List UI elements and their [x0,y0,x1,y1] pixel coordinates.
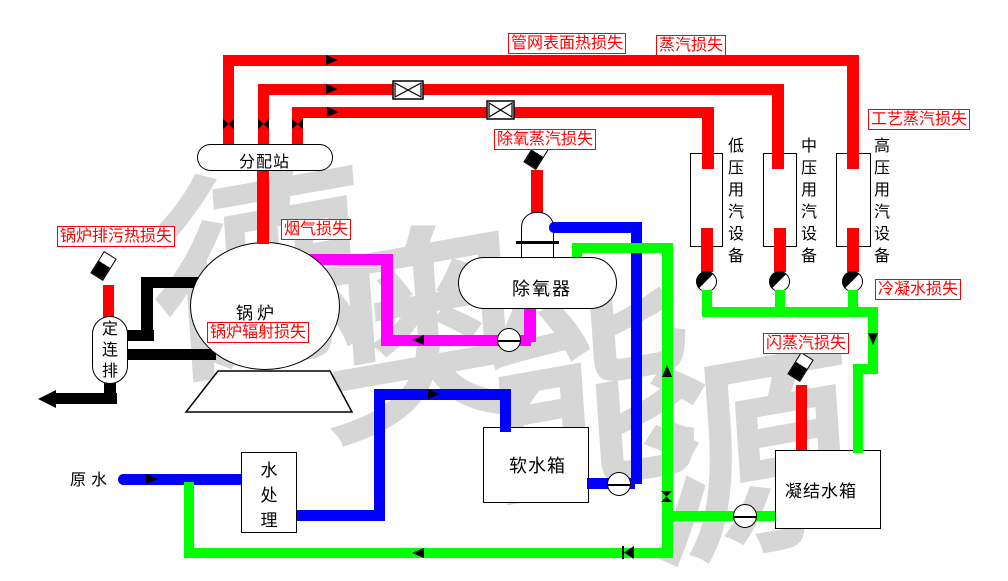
flow-arrow-right [326,55,338,65]
flow-arrow-up [662,365,672,377]
boiler-feed-pump-icon [497,328,521,352]
flow-arrow-down [868,333,878,345]
flow-arrow-right [326,84,338,94]
raw-water-label: 原水 [70,466,112,490]
blowdown-pipe [54,393,117,404]
boiler-steam-outlet-pipe [257,171,269,244]
loss-label-boiler-radiation: 锅炉辐射损失 [207,322,309,343]
loss-label-boiler-blowdown: 锅炉排污热损失 [57,226,175,247]
mp-condensate-outlet-pipe [774,228,786,272]
treated-water-pipe [374,394,385,520]
distribution-riser-pipe [223,55,234,144]
condensate-tank-inlet-pipe [853,364,863,453]
flow-arrow-right [327,107,339,117]
treated-water-pipe [374,389,511,400]
feedwater-pipe [524,304,536,342]
treated-water-pipe [294,510,385,521]
soft-water-tank-label: 软水箱 [509,452,566,478]
condensate-pipe [848,290,858,312]
valve-icon [223,119,234,129]
flow-arrow-right [428,389,440,399]
boiler-steam-system-diagram: 德 奥 能 源 定连排 锅炉 分配站 [0,0,1008,581]
deaerator-vent-pipe [531,170,543,215]
soft-tank-inlet-pipe [500,389,511,432]
blowdown-vent-pipe [103,285,114,318]
flow-arrow-left [412,335,424,345]
loss-label-steam: 蒸汽损失 [656,35,726,56]
deaerator-water-inlet-pipe [549,222,642,233]
mp-equipment-label: 中压用汽设备 [800,136,818,268]
condensate-pipe [702,290,712,312]
raw-water-pipe [118,474,245,485]
gate-valve-icon [486,100,515,120]
hp-condensate-outlet-pipe [847,228,859,272]
valve-icon [258,119,269,129]
blowdown-pipe [124,330,154,341]
feedwater-pipe [381,254,393,346]
deaerator-label: 除氧器 [512,275,572,301]
flow-arrow-right [146,474,158,484]
condensate-tank-label: 凝结水箱 [785,477,857,502]
boiler-label: 锅炉 [236,299,278,324]
blowdown-loss-flag-icon [90,251,116,281]
blowdown-pipe [124,349,216,360]
condensate-return-pipe [572,243,673,253]
loss-label-pipe-network: 管网表面热损失 [508,33,626,54]
lp-steam-drop-pipe [702,107,714,169]
water-treatment-label: 水处理 [260,458,278,533]
loss-label-deaerator-steam: 除氧蒸汽损失 [494,129,596,150]
deaerator-feed-riser-pipe [631,222,642,484]
hp-steam-drop-pipe [847,55,859,169]
condensate-pipe [775,290,785,312]
boiler-base [166,369,356,415]
steam-trap-icon [696,271,717,292]
flow-arrow-left [412,548,424,558]
lp-condensate-outlet-pipe [701,228,713,272]
hp-equipment-label: 高压用汽设备 [873,136,891,268]
loss-label-condensate: 冷凝水损失 [875,279,961,300]
gate-valve-icon [392,80,424,100]
steam-trap-icon [842,271,863,292]
deaerator-flange [516,241,559,244]
steam-trap-icon [769,271,790,292]
loss-label-flue-gas: 烟气损失 [281,219,351,240]
condensate-pump-icon [733,504,757,528]
recovered-water-pipe [184,548,673,558]
loss-label-process-steam: 工艺蒸汽损失 [868,109,970,130]
condensate-pump-pipe [667,511,777,521]
valve-icon [292,119,303,129]
flash-steam-vent-pipe [796,385,807,452]
distribution-station-label: 分配站 [239,148,290,172]
blowdown-discharge-arrow [38,390,56,408]
soft-water-pump-icon [607,472,631,496]
distribution-riser-pipe [258,84,269,144]
blowdown-vessel-label: 定连排 [101,319,119,382]
check-valve-icon [621,545,635,560]
lp-equipment-label: 低压用汽设备 [727,136,745,268]
recovered-water-pipe [184,482,194,555]
loss-label-flash-steam: 闪蒸汽损失 [763,333,849,354]
steam-main-1-pipe [224,55,859,66]
valve-icon [661,491,672,502]
deaerator-dome [521,212,554,259]
mp-steam-drop-pipe [772,84,784,169]
condensate-riser-pipe [662,243,673,555]
